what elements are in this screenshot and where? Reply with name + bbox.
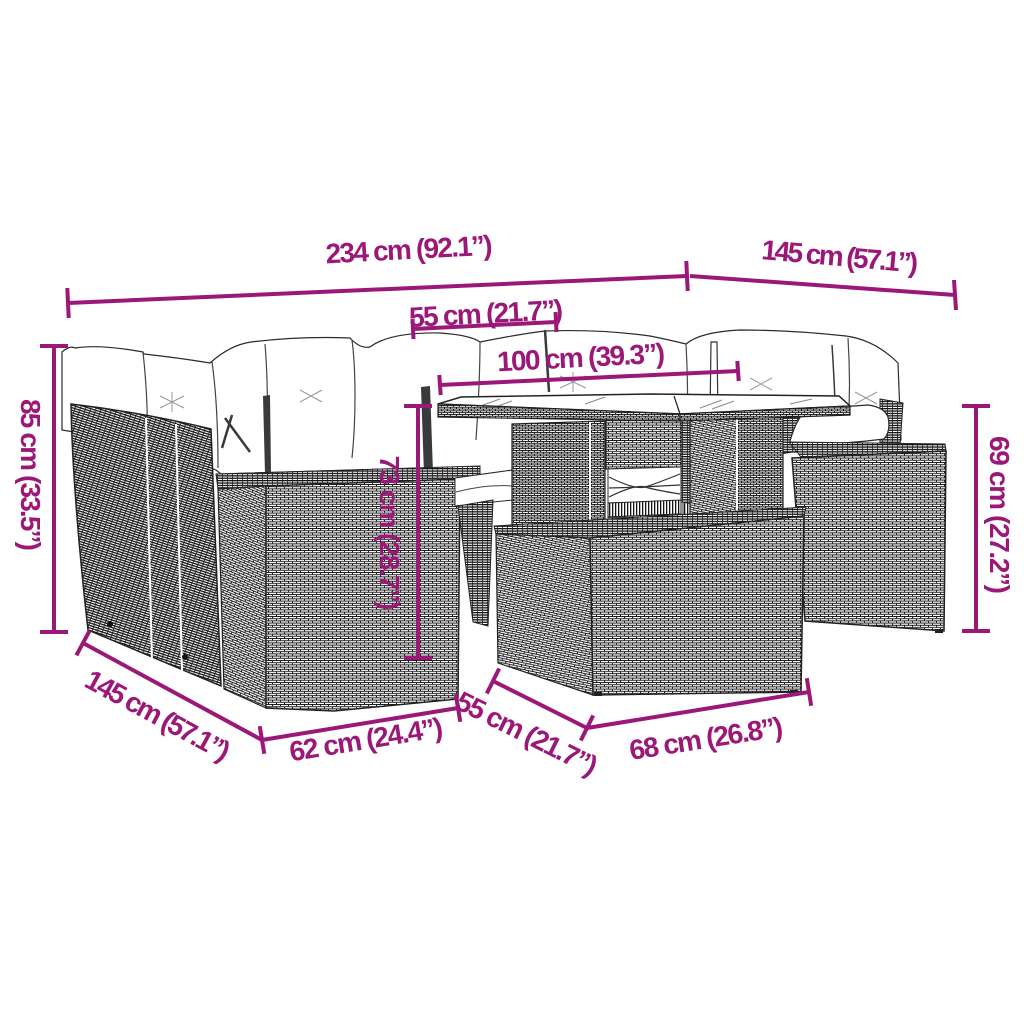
svg-text:85 cm (33.5”): 85 cm (33.5”) — [15, 399, 46, 551]
svg-text:69 cm (27.2”): 69 cm (27.2”) — [984, 436, 1015, 594]
svg-text:73 cm (28.7”): 73 cm (28.7”) — [374, 456, 405, 611]
